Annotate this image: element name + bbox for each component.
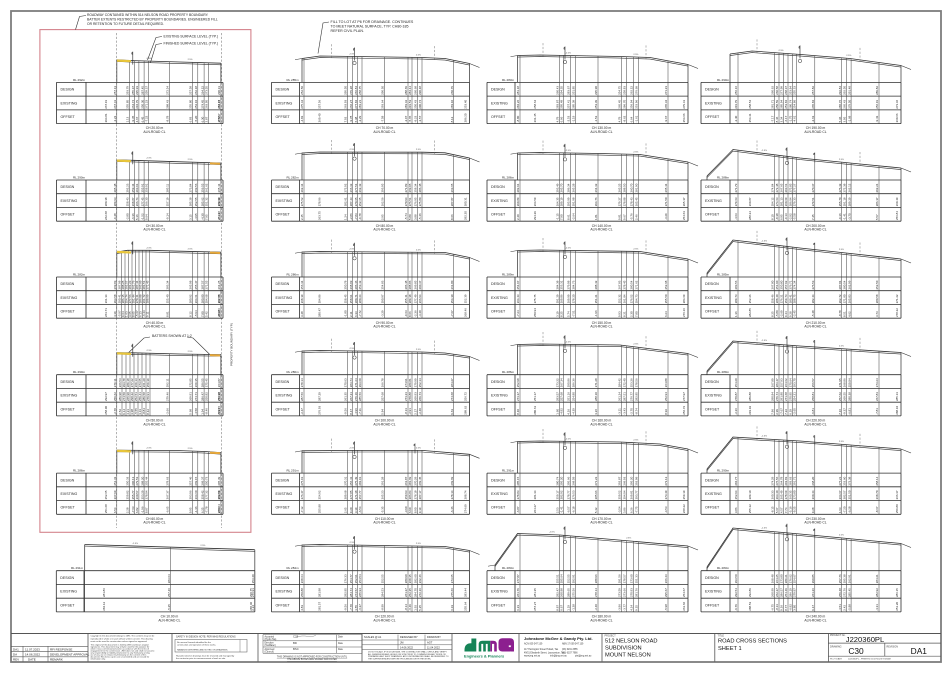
svg-text:274.84: 274.84 xyxy=(771,183,775,192)
svg-text:277.85: 277.85 xyxy=(349,490,353,499)
svg-text:251.85: 251.85 xyxy=(572,86,576,95)
svg-text:-2.66: -2.66 xyxy=(166,408,170,415)
svg-text:261.34: 261.34 xyxy=(104,294,108,303)
svg-text:7.16: 7.16 xyxy=(838,409,842,415)
svg-text:2.40: 2.40 xyxy=(516,214,520,220)
svg-text:292.95: 292.95 xyxy=(344,588,348,597)
svg-text:info@jmg.net.au: info@jmg.net.au xyxy=(550,655,567,658)
svg-text:257.41: 257.41 xyxy=(567,99,571,108)
svg-text:RL 291m: RL 291m xyxy=(287,469,300,473)
svg-text:285.28: 285.28 xyxy=(189,197,193,206)
svg-text:275.45: 275.45 xyxy=(205,378,209,387)
svg-text:289.38: 289.38 xyxy=(408,294,412,303)
svg-text:5.67: 5.67 xyxy=(775,507,779,513)
svg-text:274.71: 274.71 xyxy=(194,392,198,401)
svg-text:9.93: 9.93 xyxy=(618,311,622,317)
svg-text:ALN-ROAD CL: ALN-ROAD CL xyxy=(373,130,395,134)
svg-text:-5.35: -5.35 xyxy=(381,506,385,513)
svg-text:282.85: 282.85 xyxy=(635,392,639,401)
svg-text:251.68: 251.68 xyxy=(104,504,108,513)
svg-text:282.91: 282.91 xyxy=(358,476,362,485)
svg-text:PROJECT No.: PROJECT No. xyxy=(830,634,846,637)
svg-text:279.46: 279.46 xyxy=(166,392,170,401)
svg-text:276.47: 276.47 xyxy=(300,490,304,499)
svg-text:256.16: 256.16 xyxy=(734,86,738,95)
svg-text:THIS DRAWING IS NOT APPROVED F: THIS DRAWING IS NOT APPROVED FOR CONSTRU… xyxy=(277,655,348,658)
svg-text:270.17: 270.17 xyxy=(217,113,221,122)
svg-text:269.85: 269.85 xyxy=(414,280,418,289)
svg-text:-7.17: -7.17 xyxy=(771,115,775,122)
svg-text:294.79: 294.79 xyxy=(135,99,139,108)
svg-text:290.89: 290.89 xyxy=(516,197,520,206)
svg-text:-3.57: -3.57 xyxy=(418,115,422,122)
svg-text:295.39: 295.39 xyxy=(217,476,221,485)
svg-text:RL 290m: RL 290m xyxy=(717,469,730,473)
svg-text:ptn@jmg.net.au: ptn@jmg.net.au xyxy=(575,655,592,658)
svg-text:280.38: 280.38 xyxy=(104,197,108,206)
svg-text:294.94: 294.94 xyxy=(623,490,627,499)
svg-text:ALN-ROAD CL: ALN-ROAD CL xyxy=(590,422,612,426)
svg-text:289.68: 289.68 xyxy=(344,490,348,499)
svg-text:ALN-ROAD CL: ALN-ROAD CL xyxy=(590,228,612,232)
svg-text:295.37: 295.37 xyxy=(682,197,686,206)
svg-text:252.32: 252.32 xyxy=(618,294,622,303)
svg-text:268.35: 268.35 xyxy=(408,574,412,583)
svg-text:-2.40: -2.40 xyxy=(418,408,422,415)
svg-text:7.45: 7.45 xyxy=(811,214,815,220)
svg-text:www.jmg.net.au: www.jmg.net.au xyxy=(524,655,541,658)
svg-text:-8.78: -8.78 xyxy=(838,310,842,317)
svg-text:6.54: 6.54 xyxy=(113,507,117,513)
svg-text:252.55: 252.55 xyxy=(381,574,385,583)
svg-text:268.86: 268.86 xyxy=(843,378,847,387)
svg-text:279.63: 279.63 xyxy=(734,197,738,206)
svg-text:DESIGN: DESIGN xyxy=(705,478,719,482)
svg-text:258.34: 258.34 xyxy=(414,183,418,192)
svg-text:286.40: 286.40 xyxy=(249,601,253,610)
svg-text:256.72: 256.72 xyxy=(464,392,468,401)
svg-text:273.65: 273.65 xyxy=(450,574,454,583)
svg-text:8.87: 8.87 xyxy=(145,507,149,513)
svg-text:Date: Date xyxy=(338,642,344,645)
svg-text:-1.52: -1.52 xyxy=(594,115,598,122)
svg-text:266.74: 266.74 xyxy=(135,197,139,206)
svg-text:288.74: 288.74 xyxy=(464,490,468,499)
svg-text:6.95: 6.95 xyxy=(780,214,784,220)
svg-text:267.37: 267.37 xyxy=(166,490,170,499)
svg-text:ABN 17 009 547 139: ABN 17 009 547 139 xyxy=(562,643,584,646)
svg-text:OFFSET: OFFSET xyxy=(61,213,76,217)
svg-text:8.81: 8.81 xyxy=(166,311,170,317)
svg-text:5.80: 5.80 xyxy=(408,214,412,220)
svg-text:EXISTING: EXISTING xyxy=(705,590,722,594)
svg-text:-2.5%: -2.5% xyxy=(146,350,152,352)
svg-text:270.63: 270.63 xyxy=(344,378,348,387)
svg-text:252.55: 252.55 xyxy=(567,574,571,583)
svg-text:C30: C30 xyxy=(848,646,864,656)
svg-text:2.5%: 2.5% xyxy=(633,151,638,153)
svg-text:282.57: 282.57 xyxy=(843,490,847,499)
svg-text:268.37: 268.37 xyxy=(784,86,788,95)
svg-text:253.40: 253.40 xyxy=(251,574,255,583)
svg-text:DA: DA xyxy=(13,653,17,657)
svg-text:-8.74: -8.74 xyxy=(635,408,639,415)
svg-text:255.70: 255.70 xyxy=(838,197,842,206)
svg-text:1.55: 1.55 xyxy=(354,605,358,611)
svg-text:261.79: 261.79 xyxy=(516,588,520,597)
svg-text:268.48: 268.48 xyxy=(771,574,775,583)
svg-text:281.69: 281.69 xyxy=(408,476,412,485)
svg-text:OFFSET: OFFSET xyxy=(276,407,291,411)
svg-text:3.26: 3.26 xyxy=(594,409,598,415)
svg-text:264.88: 264.88 xyxy=(664,378,668,387)
svg-text:6.82: 6.82 xyxy=(135,507,139,513)
svg-text:9.81: 9.81 xyxy=(618,214,622,220)
svg-text:7.92: 7.92 xyxy=(344,116,348,122)
svg-text:254.21: 254.21 xyxy=(793,392,797,401)
svg-text:DESIGN: DESIGN xyxy=(705,88,719,92)
svg-text:254.63: 254.63 xyxy=(682,211,686,220)
svg-text:1.92: 1.92 xyxy=(414,605,418,611)
svg-text:-4.61: -4.61 xyxy=(793,115,797,122)
svg-text:271.79: 271.79 xyxy=(734,183,738,192)
svg-text:-8.46: -8.46 xyxy=(205,408,209,415)
svg-text:293.50: 293.50 xyxy=(734,574,738,583)
svg-text:-3.40: -3.40 xyxy=(418,310,422,317)
svg-text:260.66: 260.66 xyxy=(895,113,899,122)
svg-text:268.64: 268.64 xyxy=(300,574,304,583)
svg-text:257.92: 257.92 xyxy=(784,280,788,289)
svg-text:251.33: 251.33 xyxy=(635,574,639,583)
svg-text:DESIGN: DESIGN xyxy=(705,576,719,580)
svg-text:268.99: 268.99 xyxy=(349,280,353,289)
svg-text:2.5%: 2.5% xyxy=(416,447,421,449)
svg-text:272.85: 272.85 xyxy=(189,378,193,387)
svg-text:1.19: 1.19 xyxy=(567,605,571,611)
svg-text:273.38: 273.38 xyxy=(847,476,851,485)
svg-text:264.97: 264.97 xyxy=(217,99,221,108)
svg-text:OFFSET: OFFSET xyxy=(276,603,291,607)
svg-text:1.63: 1.63 xyxy=(838,507,842,513)
svg-text:277.54: 277.54 xyxy=(354,183,358,192)
svg-text:254.80: 254.80 xyxy=(572,392,576,401)
svg-text:264.78: 264.78 xyxy=(780,476,784,485)
svg-text:Copyright in this document bel: Copyright in this document belongs to JM… xyxy=(91,635,156,638)
svg-text:262.46: 262.46 xyxy=(418,574,422,583)
svg-text:262.56: 262.56 xyxy=(381,197,385,206)
svg-text:288.75: 288.75 xyxy=(793,294,797,303)
svg-text:268.20: 268.20 xyxy=(811,476,815,485)
svg-text:280.47: 280.47 xyxy=(318,308,322,317)
svg-text:OFFSET: OFFSET xyxy=(705,603,720,607)
svg-text:276.52: 276.52 xyxy=(630,294,634,303)
svg-text:(Council): (Council) xyxy=(265,651,274,653)
svg-text:ROADWAY CONTAINED WITHIN 514 N: ROADWAY CONTAINED WITHIN 514 NELSON ROAD… xyxy=(87,13,209,17)
svg-text:260.70: 260.70 xyxy=(630,183,634,192)
svg-text:EXISTING SURFACE LEVEL (TYP.): EXISTING SURFACE LEVEL (TYP.) xyxy=(164,35,218,39)
svg-text:258.75: 258.75 xyxy=(358,86,362,95)
svg-text:276.69: 276.69 xyxy=(635,86,639,95)
svg-text:255.50: 255.50 xyxy=(664,294,668,303)
svg-text:-9.79: -9.79 xyxy=(734,604,738,611)
svg-text:257.58: 257.58 xyxy=(189,86,193,95)
svg-text:265.94: 265.94 xyxy=(358,588,362,597)
svg-text:-4.82: -4.82 xyxy=(300,115,304,122)
svg-text:-2.91: -2.91 xyxy=(408,408,412,415)
svg-text:DESIGN: DESIGN xyxy=(276,88,290,92)
svg-text:259.19: 259.19 xyxy=(682,490,686,499)
svg-text:-4.58: -4.58 xyxy=(194,408,198,415)
svg-text:285.11: 285.11 xyxy=(166,183,170,192)
svg-text:258.83: 258.83 xyxy=(623,86,627,95)
svg-text:286.48: 286.48 xyxy=(418,183,422,192)
svg-text:-2.40: -2.40 xyxy=(594,604,598,611)
svg-text:THE SUPERINTENDENT BEFORE PROC: THE SUPERINTENDENT BEFORE PROCEEDING WIT… xyxy=(368,659,432,661)
svg-text:271.28: 271.28 xyxy=(594,378,598,387)
svg-text:OFFSET: OFFSET xyxy=(60,603,75,607)
svg-text:286.64: 286.64 xyxy=(217,504,221,513)
svg-text:5.68: 5.68 xyxy=(189,409,193,415)
svg-text:-6.18: -6.18 xyxy=(572,506,576,513)
svg-text:280.71: 280.71 xyxy=(354,294,358,303)
svg-text:-2.5%: -2.5% xyxy=(349,542,355,544)
svg-text:250.78: 250.78 xyxy=(344,280,348,289)
svg-text:287.51: 287.51 xyxy=(623,392,627,401)
svg-text:279.99: 279.99 xyxy=(414,378,418,387)
svg-text:4.83: 4.83 xyxy=(300,605,304,611)
svg-text:-2.5%: -2.5% xyxy=(349,53,355,55)
svg-text:295.20: 295.20 xyxy=(560,476,564,485)
svg-text:293.92: 293.92 xyxy=(748,405,752,414)
svg-text:OFFSET: OFFSET xyxy=(491,506,506,510)
svg-text:252.14: 252.14 xyxy=(418,378,422,387)
svg-text:279.41: 279.41 xyxy=(682,99,686,108)
svg-text:2.28: 2.28 xyxy=(126,507,130,513)
svg-text:275.66: 275.66 xyxy=(450,588,454,597)
svg-text:8.12: 8.12 xyxy=(450,116,454,122)
svg-text:REFER CIVIL PLAN.: REFER CIVIL PLAN. xyxy=(331,29,364,33)
svg-text:11.04.2022: 11.04.2022 xyxy=(427,645,440,649)
svg-text:275.49: 275.49 xyxy=(354,476,358,485)
svg-text:274.63: 274.63 xyxy=(775,197,779,206)
svg-text:278.77: 278.77 xyxy=(567,490,571,499)
svg-text:-2.29: -2.29 xyxy=(358,115,362,122)
svg-text:2.5%: 2.5% xyxy=(633,54,638,56)
svg-text:-9.14: -9.14 xyxy=(166,213,170,220)
svg-text:288.42: 288.42 xyxy=(594,280,598,289)
svg-text:252.68: 252.68 xyxy=(664,280,668,289)
svg-text:DESIGN: DESIGN xyxy=(61,282,75,286)
svg-text:272.40: 272.40 xyxy=(623,378,627,387)
svg-text:-9.48: -9.48 xyxy=(113,213,117,220)
svg-text:280.54: 280.54 xyxy=(843,280,847,289)
svg-text:-7.11: -7.11 xyxy=(358,408,362,415)
svg-text:3.48: 3.48 xyxy=(300,311,304,317)
svg-text:EXISTING: EXISTING xyxy=(705,296,722,300)
svg-text:264.25: 264.25 xyxy=(775,574,779,583)
svg-text:8.12: 8.12 xyxy=(189,311,193,317)
svg-text:DATE: DATE xyxy=(28,658,36,662)
svg-text:-9.16: -9.16 xyxy=(838,213,842,220)
svg-text:292.34: 292.34 xyxy=(300,183,304,192)
svg-text:291.15: 291.15 xyxy=(217,405,221,414)
svg-text:ALN-ROAD CL: ALN-ROAD CL xyxy=(143,422,165,426)
svg-text:260.79: 260.79 xyxy=(450,86,454,95)
svg-text:280.58: 280.58 xyxy=(875,294,879,303)
svg-text:OFFSET: OFFSET xyxy=(491,115,506,119)
svg-text:5.84: 5.84 xyxy=(381,409,385,415)
svg-text:254.77: 254.77 xyxy=(349,574,353,583)
svg-text:271.55: 271.55 xyxy=(205,280,209,289)
svg-text:273.46: 273.46 xyxy=(895,99,899,108)
svg-text:260.98: 260.98 xyxy=(560,588,564,597)
svg-text:261.66: 261.66 xyxy=(682,601,686,610)
svg-text:276.77: 276.77 xyxy=(630,392,634,401)
svg-text:272.54: 272.54 xyxy=(166,86,170,95)
svg-text:EXISTING: EXISTING xyxy=(491,101,508,105)
svg-text:292.84: 292.84 xyxy=(838,86,842,95)
svg-text:-2.5%: -2.5% xyxy=(349,149,355,151)
svg-text:-2.5%: -2.5% xyxy=(565,53,571,55)
svg-text:282.94: 282.94 xyxy=(516,183,520,192)
svg-text:266.43: 266.43 xyxy=(664,574,668,583)
svg-text:262.12: 262.12 xyxy=(847,183,851,192)
svg-text:256.41: 256.41 xyxy=(349,476,353,485)
svg-text:ALN-ROAD CL: ALN-ROAD CL xyxy=(804,422,826,426)
svg-text:DESIGN: DESIGN xyxy=(276,576,290,580)
svg-text:282.85: 282.85 xyxy=(748,308,752,317)
svg-text:PROJECT: PROJECT xyxy=(605,635,617,638)
svg-text:9.67: 9.67 xyxy=(623,214,627,220)
svg-text:BATTERS SHOWN AT 1:2: BATTERS SHOWN AT 1:2 xyxy=(152,334,192,338)
svg-text:ACN 009 547 139: ACN 009 547 139 xyxy=(524,643,543,646)
svg-text:FINISHED SURFACE LEVEL (TYP.): FINISHED SURFACE LEVEL (TYP.) xyxy=(164,42,218,46)
svg-text:2.5%: 2.5% xyxy=(188,159,193,161)
svg-text:-9.25: -9.25 xyxy=(793,506,797,513)
svg-text:278.14: 278.14 xyxy=(450,490,454,499)
svg-text:278.56: 278.56 xyxy=(635,378,639,387)
svg-text:271.50: 271.50 xyxy=(664,197,668,206)
svg-text:273.49: 273.49 xyxy=(664,490,668,499)
svg-text:260.49: 260.49 xyxy=(895,197,899,206)
svg-text:-5.88: -5.88 xyxy=(847,604,851,611)
svg-text:250.43: 250.43 xyxy=(414,99,418,108)
svg-text:-8.13: -8.13 xyxy=(775,604,779,611)
svg-text:288.40: 288.40 xyxy=(775,294,779,303)
svg-text:277.49: 277.49 xyxy=(414,294,418,303)
svg-text:252.39: 252.39 xyxy=(464,294,468,303)
svg-text:ALN-ROAD CL: ALN-ROAD CL xyxy=(143,228,165,232)
svg-text:DESIGN: DESIGN xyxy=(276,380,290,384)
svg-text:-4.39: -4.39 xyxy=(572,408,576,415)
svg-text:DESIGN: DESIGN xyxy=(61,88,75,92)
svg-text:281.71: 281.71 xyxy=(771,99,775,108)
svg-text:RL 286m: RL 286m xyxy=(73,469,86,473)
svg-text:288.43: 288.43 xyxy=(166,99,170,108)
svg-text:250.82: 250.82 xyxy=(205,392,209,401)
svg-text:254.66: 254.66 xyxy=(682,113,686,122)
svg-text:281.13: 281.13 xyxy=(780,197,784,206)
svg-text:256.90: 256.90 xyxy=(217,392,221,401)
svg-text:266.84: 266.84 xyxy=(354,86,358,95)
svg-text:280.31: 280.31 xyxy=(464,197,468,206)
svg-text:287.17: 287.17 xyxy=(418,490,422,499)
svg-text:279.50: 279.50 xyxy=(847,99,851,108)
svg-text:295.67: 295.67 xyxy=(664,588,668,597)
svg-text:280.61: 280.61 xyxy=(533,405,537,414)
svg-text:DESIGN: DESIGN xyxy=(491,185,505,189)
svg-text:-2.70: -2.70 xyxy=(630,408,634,415)
svg-text:265.34: 265.34 xyxy=(664,99,668,108)
svg-text:2.30: 2.30 xyxy=(630,311,634,317)
svg-text:286.70: 286.70 xyxy=(623,99,627,108)
svg-text:OFFSET: OFFSET xyxy=(491,310,506,314)
svg-text:269.69: 269.69 xyxy=(450,476,454,485)
svg-text:252.50: 252.50 xyxy=(875,280,879,289)
svg-text:-3.96: -3.96 xyxy=(618,604,622,611)
svg-text:6.83: 6.83 xyxy=(189,116,193,122)
svg-text:ALN-ROAD CL: ALN-ROAD CL xyxy=(373,618,395,622)
svg-text:-5.94: -5.94 xyxy=(194,310,198,317)
svg-text:281.98: 281.98 xyxy=(318,588,322,597)
svg-text:EXISTING: EXISTING xyxy=(61,296,78,300)
svg-text:281.18: 281.18 xyxy=(516,86,520,95)
svg-text:DESIGN: DESIGN xyxy=(61,478,75,482)
svg-text:286.46: 286.46 xyxy=(354,280,358,289)
svg-text:264.62: 264.62 xyxy=(784,378,788,387)
svg-text:-9.43: -9.43 xyxy=(875,115,879,122)
svg-text:269.40: 269.40 xyxy=(318,113,322,122)
svg-text:258.81: 258.81 xyxy=(811,392,815,401)
svg-text:270.88: 270.88 xyxy=(408,392,412,401)
svg-text:DESIGN: DESIGN xyxy=(705,380,719,384)
svg-text:267.65: 267.65 xyxy=(780,183,784,192)
svg-text:261.62: 261.62 xyxy=(205,183,209,192)
svg-text:273.80: 273.80 xyxy=(780,574,784,583)
svg-text:EXISTING: EXISTING xyxy=(276,394,293,398)
svg-text:-6.46: -6.46 xyxy=(450,506,454,513)
svg-text:-2.45: -2.45 xyxy=(793,310,797,317)
svg-text:OFFSET: OFFSET xyxy=(491,213,506,217)
svg-text:263.93: 263.93 xyxy=(344,99,348,108)
svg-text:-9.13: -9.13 xyxy=(784,213,788,220)
svg-text:257.19: 257.19 xyxy=(166,197,170,206)
svg-text:269.95: 269.95 xyxy=(408,183,412,192)
svg-text:290.48: 290.48 xyxy=(418,86,422,95)
svg-text:294.73: 294.73 xyxy=(635,294,639,303)
svg-text:269.73: 269.73 xyxy=(418,392,422,401)
svg-text:279.74: 279.74 xyxy=(775,392,779,401)
svg-text:291.56: 291.56 xyxy=(618,574,622,583)
svg-text:284.26: 284.26 xyxy=(516,99,520,108)
svg-text:294.86: 294.86 xyxy=(318,294,322,303)
svg-text:260.68: 260.68 xyxy=(414,86,418,95)
svg-text:278.83: 278.83 xyxy=(516,490,520,499)
svg-text:283.64: 283.64 xyxy=(167,574,171,583)
svg-text:SAFETY IN DESIGN NOTE: PER WHS: SAFETY IN DESIGN NOTE: PER WHS REGULATIO… xyxy=(176,636,236,639)
svg-text:282.44: 282.44 xyxy=(811,294,815,303)
svg-text:271.95: 271.95 xyxy=(838,378,842,387)
svg-text:J220360PL: J220360PL xyxy=(846,635,884,644)
svg-text:-4.63: -4.63 xyxy=(734,213,738,220)
svg-text:EXISTING: EXISTING xyxy=(491,492,508,496)
svg-text:3.19: 3.19 xyxy=(354,507,358,513)
svg-text:257.56: 257.56 xyxy=(318,99,322,108)
svg-text:271.22: 271.22 xyxy=(895,294,899,303)
svg-text:293.77: 293.77 xyxy=(635,490,639,499)
svg-text:-5.25: -5.25 xyxy=(167,604,171,611)
svg-text:260.87: 260.87 xyxy=(748,197,752,206)
